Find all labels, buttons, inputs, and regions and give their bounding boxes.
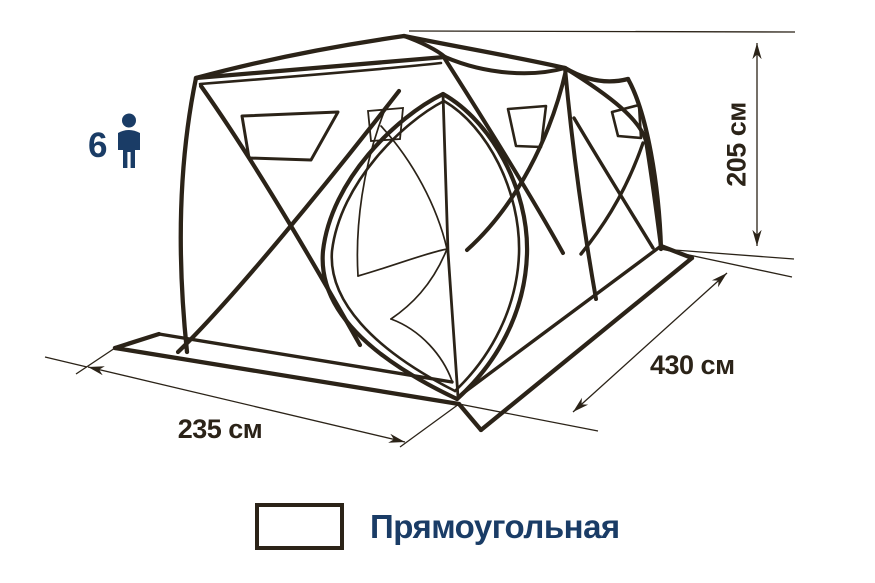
legend-shape-label: Прямоугольная bbox=[370, 508, 620, 546]
width-label: 235 см bbox=[165, 414, 275, 445]
capacity-count: 6 bbox=[88, 126, 107, 166]
window-front-face bbox=[508, 106, 546, 147]
height-label: 205 см bbox=[722, 85, 753, 205]
tent-outline bbox=[181, 36, 661, 352]
person-icon bbox=[114, 112, 144, 175]
window-left-wall bbox=[242, 112, 338, 160]
tent-dimensions-diagram: 6 205 см 430 см 235 см Прямоугольная bbox=[0, 0, 875, 583]
width-witness-right bbox=[400, 404, 459, 447]
width-witness-left bbox=[76, 348, 115, 374]
width-line-extension bbox=[45, 357, 87, 367]
tent-door-interior-lines bbox=[357, 108, 452, 381]
legend-shape-swatch bbox=[257, 505, 342, 548]
dimension-lines bbox=[45, 31, 795, 447]
length-label: 430 см bbox=[650, 350, 735, 381]
tent-skirt bbox=[115, 246, 692, 430]
height-tick-top bbox=[409, 31, 795, 32]
